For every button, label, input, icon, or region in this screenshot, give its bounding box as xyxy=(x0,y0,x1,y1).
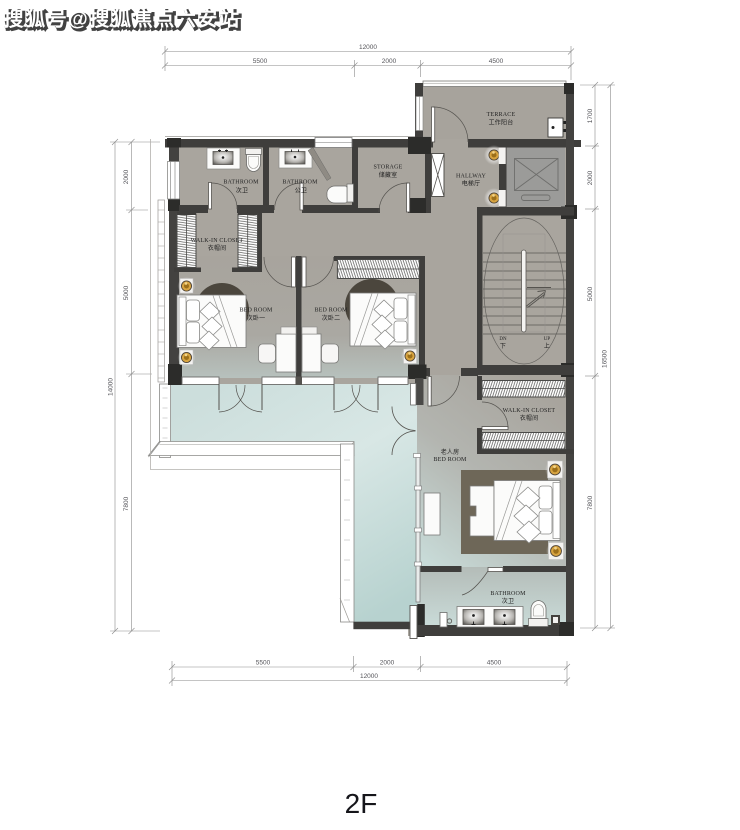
svg-text:次卫: 次卫 xyxy=(236,187,248,195)
svg-text:WALK-IN CLOSET: WALK-IN CLOSET xyxy=(191,238,244,244)
svg-text:5500: 5500 xyxy=(256,660,271,667)
svg-text:5000: 5000 xyxy=(587,286,594,301)
svg-text:1700: 1700 xyxy=(587,108,594,123)
svg-text:5500: 5500 xyxy=(253,58,268,65)
svg-text:4500: 4500 xyxy=(487,660,502,667)
svg-text:电梯厅: 电梯厅 xyxy=(462,180,481,188)
svg-text:2000: 2000 xyxy=(380,660,395,667)
svg-text:BATHROOM: BATHROOM xyxy=(490,591,526,597)
svg-text:下: 下 xyxy=(500,343,506,350)
svg-text:2F: 2F xyxy=(345,788,378,819)
svg-text:7800: 7800 xyxy=(587,495,594,510)
svg-text:5000: 5000 xyxy=(123,285,130,300)
svg-text:TERRACE: TERRACE xyxy=(487,112,516,118)
svg-text:STORAGE: STORAGE xyxy=(374,165,403,171)
svg-text:次卫: 次卫 xyxy=(502,597,514,605)
svg-text:2000: 2000 xyxy=(587,170,594,185)
svg-text:储藏室: 储藏室 xyxy=(379,171,398,179)
svg-text:BATHROOM: BATHROOM xyxy=(282,180,318,186)
svg-text:BED ROOM: BED ROOM xyxy=(239,308,273,314)
svg-text:2000: 2000 xyxy=(123,169,130,184)
svg-text:工作阳台: 工作阳台 xyxy=(489,119,514,127)
svg-text:HALLWAY: HALLWAY xyxy=(456,174,487,180)
svg-text:次卧二: 次卧二 xyxy=(322,314,341,322)
svg-text:BED ROOM: BED ROOM xyxy=(314,308,348,314)
svg-text:衣帽间: 衣帽间 xyxy=(208,244,227,252)
svg-text:12000: 12000 xyxy=(359,44,377,51)
svg-text:4500: 4500 xyxy=(489,58,504,65)
svg-text:12000: 12000 xyxy=(360,673,378,680)
svg-text:上: 上 xyxy=(544,342,550,350)
svg-text:BATHROOM: BATHROOM xyxy=(223,180,259,186)
svg-text:BED ROOM: BED ROOM xyxy=(433,457,467,463)
svg-text:7800: 7800 xyxy=(123,496,130,511)
svg-text:老人房: 老人房 xyxy=(441,448,460,456)
svg-text:搜狐号@搜狐焦点六安站: 搜狐号@搜狐焦点六安站 xyxy=(4,7,241,31)
svg-text:次卧一: 次卧一 xyxy=(247,314,266,322)
svg-text:16500: 16500 xyxy=(602,350,609,368)
svg-text:衣帽间: 衣帽间 xyxy=(520,414,539,422)
svg-text:公卫: 公卫 xyxy=(295,188,307,195)
svg-text:2000: 2000 xyxy=(382,58,397,65)
svg-text:WALK-IN CLOSET: WALK-IN CLOSET xyxy=(503,408,556,414)
svg-text:14000: 14000 xyxy=(108,378,115,396)
svg-text:UP: UP xyxy=(544,337,551,342)
svg-text:DN: DN xyxy=(499,337,507,342)
